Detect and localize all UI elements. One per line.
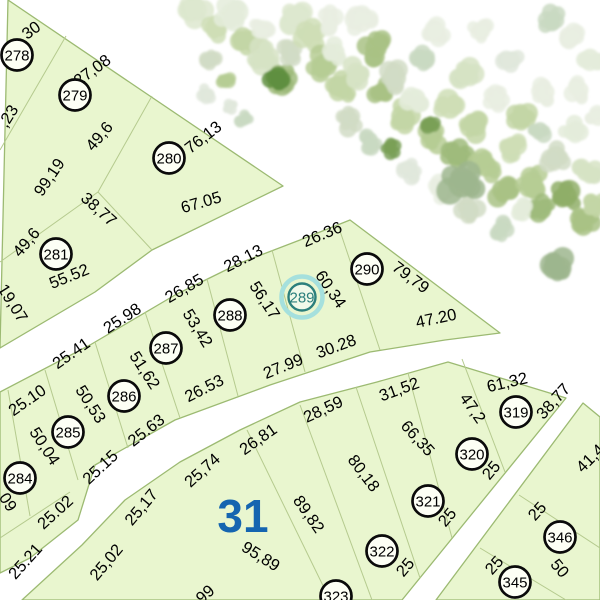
cadastral-map: 3027,0876,1367.05,2349,699,1938,7749,655… [0,0,600,600]
tree-icon [559,23,585,50]
tree-icon [531,77,555,107]
parcel-number-text: 280 [156,150,181,167]
parcel-number-text: 323 [323,588,348,600]
block-number-label: 31 [217,490,268,542]
parcel-marker-290[interactable]: 290 [352,254,383,285]
parcel-marker-280[interactable]: 280 [154,143,185,174]
parcel-number-text: 285 [55,424,80,441]
tree-icon [223,99,238,115]
parcel-number-text: 281 [43,246,68,263]
tree-icon [576,49,600,71]
parcel-number-text: 287 [153,340,178,357]
parcel-marker-319[interactable]: 319 [501,397,532,428]
tree-icon [399,87,429,113]
tree-icon [380,138,401,160]
parcel-marker-281[interactable]: 281 [41,239,72,270]
parcel-number-text: 288 [217,307,242,324]
parcel-marker-286[interactable]: 286 [109,381,140,412]
parcel-number-text: 319 [503,404,528,421]
tree-icon [433,89,465,119]
parcel-number-text: 284 [7,470,32,487]
tree-icon [449,57,485,89]
parcel-number-text: 279 [62,87,87,104]
parcel-marker-323[interactable]: 323 [321,581,352,600]
tree-icon [499,133,527,163]
cadastral-map-viewport: 3027,0876,1367.05,2349,699,1938,7749,655… [0,0,600,600]
parcel-number-text: 346 [547,529,572,546]
tree-icon [490,215,515,242]
parcel-marker-320[interactable]: 320 [457,439,488,470]
parcel-marker-287[interactable]: 287 [151,333,182,364]
tree-icon [318,4,344,36]
tree-icon [538,4,566,33]
tree-icon [234,110,254,128]
tree-icon [467,18,494,43]
parcel-number-text: 290 [354,261,379,278]
tree-icon [336,106,363,138]
tree-icon [539,140,571,172]
tree-icon [558,115,589,143]
tree-icon [436,161,485,205]
parcel-number-text: 345 [502,574,527,591]
parcel-number-text: 286 [111,388,136,405]
tree-icon [528,122,552,143]
tree-icon [409,45,435,72]
tree-icon [396,158,422,186]
parcel-marker-288[interactable]: 288 [215,300,246,331]
parcel-marker-321[interactable]: 321 [413,486,444,517]
tree-icon [421,16,451,47]
tree-icon [196,83,216,104]
parcel-marker-278[interactable]: 278 [2,40,33,71]
tree-icon [572,159,600,185]
tree-icon [585,105,600,126]
tree-icon [540,247,574,281]
parcel-number-text: 322 [369,543,394,560]
tree-icon [495,50,525,73]
tree-icon [216,72,236,88]
parcel-marker-279[interactable]: 279 [60,80,91,111]
tree-icon [564,75,589,104]
parcel-marker-322[interactable]: 322 [367,536,398,567]
parcel-marker-346[interactable]: 346 [545,522,576,553]
tree-icon [199,50,223,71]
parcel-marker-345[interactable]: 345 [500,567,531,598]
parcel-number-text: 289 [289,289,314,306]
parcel-number-text: 278 [4,47,29,64]
parcel-marker-289[interactable]: 289 [282,277,323,318]
tree-icon [483,84,510,113]
tree-icon [359,129,382,156]
parcel-number-text: 320 [459,446,484,463]
parcel-marker-285[interactable]: 285 [53,417,84,448]
tree-icon [511,197,533,221]
parcel-marker-284[interactable]: 284 [5,463,36,494]
vegetation [177,0,600,281]
parcel-number-text: 321 [415,493,440,510]
